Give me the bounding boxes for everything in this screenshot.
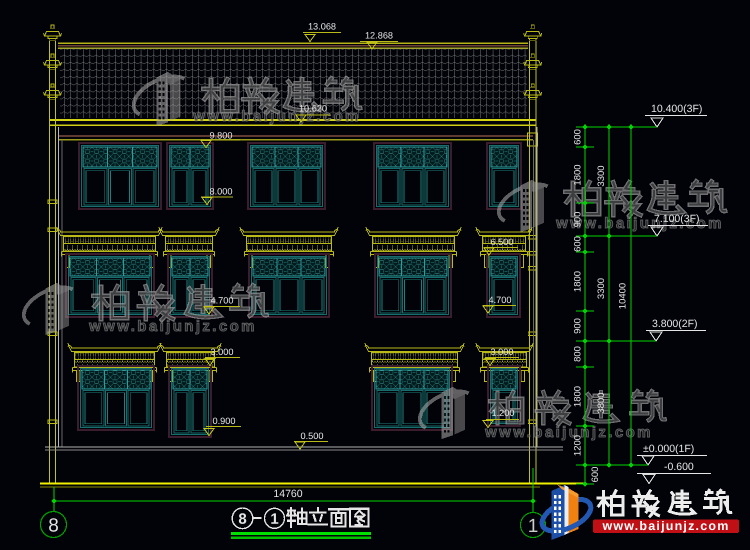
svg-text:8.000: 8.000 [209,186,232,196]
svg-text:600: 600 [573,236,584,252]
svg-text:1800: 1800 [573,164,584,185]
svg-text:10400: 10400 [618,283,629,309]
svg-text:1: 1 [528,516,539,537]
svg-text:8: 8 [48,515,59,536]
svg-text:900: 900 [573,212,584,228]
svg-text:0.500: 0.500 [300,431,323,441]
svg-text:600: 600 [573,129,584,145]
svg-text:1800: 1800 [573,271,584,292]
svg-text:-0.600: -0.600 [664,461,694,473]
svg-text:www.baijunjz.com: www.baijunjz.com [88,318,257,335]
svg-text:www.baijunjz.com: www.baijunjz.com [484,424,653,441]
svg-text:900: 900 [573,318,584,334]
svg-text:1200: 1200 [573,435,584,456]
svg-text:4.700: 4.700 [488,295,511,305]
svg-text:1: 1 [270,511,278,528]
svg-text:3.000: 3.000 [210,347,233,357]
svg-text:10.400(3F): 10.400(3F) [651,103,702,115]
svg-text:7.100(3F): 7.100(3F) [654,213,700,225]
svg-text:4.700: 4.700 [210,295,233,305]
svg-text:9.800: 9.800 [209,130,232,140]
svg-text:6.500: 6.500 [490,237,513,247]
svg-text:1.200: 1.200 [491,408,514,418]
svg-text:14760: 14760 [273,488,302,500]
svg-text:www.baijunjz.com: www.baijunjz.com [192,108,361,125]
svg-text:3300: 3300 [596,278,607,299]
svg-text:1800: 1800 [573,386,584,407]
svg-text:www.baijunjz.com: www.baijunjz.com [601,519,729,533]
svg-text:0.900: 0.900 [212,416,235,426]
svg-text:3.800(2F): 3.800(2F) [652,318,698,330]
svg-text:8: 8 [238,511,246,528]
svg-text:10.620: 10.620 [299,103,327,113]
svg-text:3800: 3800 [596,392,607,413]
svg-text:3.000: 3.000 [490,347,513,357]
svg-text:12.868: 12.868 [365,30,393,40]
svg-text:13.068: 13.068 [308,21,336,31]
svg-text:800: 800 [573,346,584,362]
svg-text:3300: 3300 [596,165,607,186]
svg-text:600: 600 [590,467,601,483]
svg-text:±0.000(1F): ±0.000(1F) [643,443,694,455]
